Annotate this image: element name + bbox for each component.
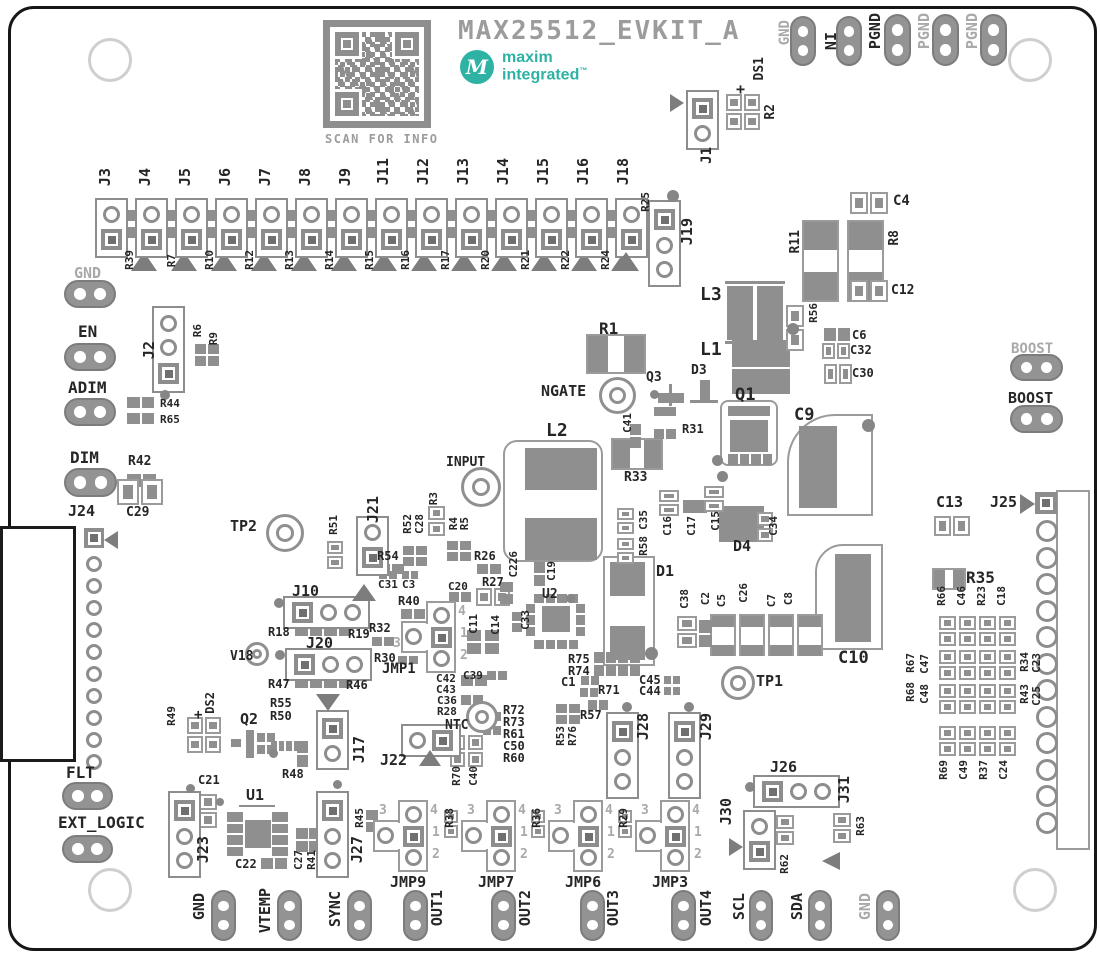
label-r3: R3 [428,492,439,505]
connector-j6 [215,198,248,258]
via-dot [186,784,195,793]
round-pin [86,644,102,660]
maxim-logo-icon: M [460,50,494,84]
grid-component [979,726,996,756]
label-out3: OUT3 [606,890,621,926]
pin1-marker-triangle [316,694,340,711]
label-dim: DIM [70,450,99,466]
smd-component [677,616,697,648]
round-pin [86,688,102,704]
pcb-pad [770,645,792,656]
label-j6: J6 [218,168,233,186]
smd-component [704,486,724,512]
round-pin [86,666,102,682]
grid-component [939,616,956,646]
label-c8: C8 [783,592,794,605]
board-title: MAX25512_EVKIT_A [458,16,740,46]
label-r25: R25 [640,192,651,212]
label-jmp7: JMP7 [478,875,514,890]
label-j25: J25 [990,495,1017,510]
label-en: EN [78,324,97,340]
smd-component [199,794,217,828]
label-c49: C49 [958,760,969,780]
label-r76: R76 [567,726,578,746]
label-j12: J12 [416,158,431,185]
pin1-marker-triangle [822,852,840,870]
label-r65: R65 [160,414,180,425]
pin-number-2: 2 [520,848,528,861]
via-dot [275,650,285,660]
connector-j13 [455,198,488,258]
label-ds2: DS2 [204,692,216,714]
label-jmp9: JMP9 [390,875,426,890]
label-ds1: DS1 [753,57,766,80]
pin1-marker-triangle [104,531,118,549]
smd-component [477,564,501,574]
pad-en [64,343,116,371]
label-r37: R37 [978,760,989,780]
via-dot [667,190,679,202]
pin-number-2: 2 [607,848,615,861]
pcb-pad [757,286,783,340]
label-r26: R26 [474,550,496,562]
label-c32: C32 [850,344,872,356]
label-r34: R34 [1019,652,1030,672]
smd-component [428,506,445,536]
smd-component [403,546,414,566]
label-sync: SYNC [328,891,343,927]
smd-component [372,637,394,646]
label-r69: R69 [938,760,949,780]
pcb-pad [712,616,734,627]
label-j4: J4 [138,168,153,186]
label-c40: C40 [468,766,479,786]
label-j10: J10 [292,584,319,599]
grid-component [959,650,976,680]
label-pgnd: PGND [965,13,980,49]
label-j21: J21 [366,496,381,523]
round-pin [465,827,482,844]
qr-finder-tr [395,32,419,56]
label-r43: R43 [1019,684,1030,704]
label-j31: J31 [837,776,852,803]
square-pin [665,826,686,847]
smd-component [117,479,163,505]
smd-component [850,192,888,214]
smd-component [297,741,308,767]
label-r2: R2 [764,104,777,120]
pin-number-3: 3 [641,804,649,817]
label-c44: C44 [639,685,661,697]
label-r1: R1 [599,321,618,337]
connector-j30 [743,810,776,870]
pcb-pad [525,448,597,490]
connector-j26 [753,775,840,808]
label-r23: R23 [976,586,987,606]
via-dot [787,323,799,335]
label-c25: C25 [1031,686,1042,706]
label-c30: C30 [852,367,874,379]
label-r57: R57 [580,709,602,721]
grid-component [979,684,996,714]
label-c47: C47 [919,654,930,674]
label-j11: J11 [376,158,391,185]
label-boost: BOOST [1008,391,1053,406]
label-c7: C7 [766,594,777,607]
jumper-join [573,823,577,849]
via-dot [684,702,694,712]
label-c3: C3 [402,579,415,590]
grid-component [959,726,976,756]
label-c18: C18 [996,586,1007,606]
label-r10: R10 [204,250,215,270]
mounting-hole [88,868,132,912]
pcb-pad [799,645,821,656]
label-c33: C33 [520,610,531,630]
label-r52: R52 [402,514,413,534]
pcb-pad [690,400,718,403]
pin-number-4: 4 [605,804,613,817]
round-pin [433,650,450,667]
via-dot [333,780,342,789]
label-r71: R71 [598,684,620,696]
pcb-pad [799,616,821,627]
label-c11: C11 [468,614,479,634]
smd-component [594,652,640,663]
via-dot [216,798,224,806]
pin1-marker-triangle [613,252,639,271]
pcb-pad [732,340,790,367]
label-r47: R47 [268,678,290,690]
pad-ext-logic [62,835,113,863]
smd-component [468,735,483,767]
mounting-hole [1008,38,1052,82]
label-r55: R55 [270,697,292,709]
pad-out4 [671,890,696,941]
connector-j3 [95,198,128,258]
mounting-hole [1013,868,1057,912]
pad-gnd-left [64,280,116,308]
label-c34: C34 [768,516,779,536]
connector-j20 [285,648,372,681]
connector-j4 [135,198,168,258]
pcb-pad [654,407,676,416]
smd-component [776,815,794,845]
label-j19: J19 [680,218,695,245]
label-c38: C38 [679,589,690,609]
label-r42: R42 [128,455,151,468]
label-ext-logic: EXT_LOGIC [58,815,145,831]
label-v18: V18 [230,650,253,663]
label-r7: R7 [166,254,177,267]
label-r53: R53 [555,726,566,746]
label-j18: J18 [616,158,631,185]
round-pin [86,556,102,572]
pad-boost-1 [1010,354,1063,381]
smd-component [659,490,679,516]
smd-component [534,562,545,586]
pcb-pad [246,730,254,758]
smd-component [327,541,343,569]
smd-component [833,813,851,843]
label-r16: R16 [400,250,411,270]
label-r56: R56 [808,303,819,323]
label-j16: J16 [576,158,591,185]
label-c6: C6 [852,329,866,341]
label-c21: C21 [198,774,220,786]
label--: + [736,82,745,97]
label-r24: R24 [600,250,611,270]
grid-component [939,684,956,714]
label-j22: J22 [380,753,407,768]
label-r15: R15 [364,250,375,270]
label-r58: R58 [638,536,649,556]
label-j5: J5 [178,168,193,186]
round-pin [1036,520,1058,542]
label-c17: C17 [686,516,697,536]
label-r54: R54 [377,550,399,562]
label-r5: R5 [459,517,470,530]
label-j30: J30 [719,798,734,825]
pcb-pad [741,616,763,627]
smd-component [664,676,680,684]
pin1-marker-triangle [729,838,743,856]
label-l2: L2 [546,422,568,440]
label-r11: R11 [789,230,802,253]
pin-number-3: 3 [467,804,475,817]
round-pin [405,628,422,645]
label-c41: C41 [622,413,633,433]
ngate-testpoint [599,377,636,414]
label-u2: U2 [542,588,558,601]
label-j3: J3 [98,168,113,186]
label-r9: R9 [208,332,219,345]
label-r50: R50 [270,710,292,722]
via-dot [274,598,284,608]
pcb-pad [610,562,645,596]
grid-component [939,650,956,680]
pcb-pad [727,286,753,340]
pad-boost-2 [1010,405,1063,433]
pin-number-2: 2 [694,848,702,861]
square-pin [491,826,512,847]
label-r20: R20 [480,250,491,270]
qr-code [323,20,431,128]
label-jmp3: JMP3 [652,875,688,890]
smd-component [208,344,219,366]
connector-j12 [415,198,448,258]
label-j29: J29 [699,713,714,740]
label-c12: C12 [891,284,914,297]
smd-component [664,687,680,695]
label-r17: R17 [440,250,451,270]
grid-component [999,684,1016,714]
label-sda: SDA [790,893,805,920]
label-c19: C19 [546,561,557,581]
label-out2: OUT2 [518,890,533,926]
smd-component [617,538,634,564]
pin-number-1: 1 [520,826,528,839]
label-j13: J13 [456,158,471,185]
smd-component [822,343,850,359]
connector-j21 [356,516,389,576]
pin1-marker-triangle [1020,494,1035,514]
label-j24: J24 [68,504,95,519]
pad-scl [749,890,773,941]
label-r40: R40 [398,595,420,607]
grid-component [979,650,996,680]
pad-adim [64,398,116,426]
pcb-pad [700,380,710,400]
label-c28: C28 [414,514,425,534]
label-gnd: GND [192,893,207,920]
label-pgnd: PGND [868,13,883,49]
pin-number-4: 4 [458,605,466,618]
label-r29: R29 [618,808,629,828]
label-gnd: GND [74,266,101,281]
label-c20: C20 [448,581,468,592]
label-j1: J1 [700,147,714,164]
round-pin [1036,547,1058,569]
round-pin [86,578,102,594]
label-j8: J8 [298,168,313,186]
pcb-pad [799,426,837,508]
label-r62: R62 [779,854,790,874]
maxim-logo-text: maxim integrated™ [502,50,587,84]
square-pin [431,627,452,648]
pin1-marker-triangle [419,750,441,766]
grid-component [959,684,976,714]
smd-component [556,704,567,724]
pcb-board: SCAN FOR INFO MAX25512_EVKIT_A M maxim i… [0,0,1100,956]
via-dot [269,749,278,758]
label-r13: R13 [284,250,295,270]
label-tp2: TP2 [230,519,257,534]
pcb-pad [741,645,763,656]
pin-number-4: 4 [692,804,700,817]
label-r44: R44 [160,398,180,409]
smd-component [195,344,206,366]
round-pin [86,710,102,726]
label-c22: C22 [235,858,257,870]
label-r27: R27 [482,576,504,588]
pad-pgnd-3 [980,14,1007,66]
ntc-testpoint [466,701,498,733]
label-l1: L1 [700,341,722,359]
label-c4: C4 [893,194,910,208]
label-boost: BOOST [1011,342,1053,356]
round-pin [667,849,684,866]
pad-gnd-bottom [211,890,236,941]
round-pin [86,622,102,638]
component-outline [1056,490,1090,850]
pin-number-3: 3 [393,637,401,650]
logo-tm: ™ [579,66,587,75]
round-pin [580,849,597,866]
grid-component [999,616,1016,646]
pad-pgnd-2 [932,14,959,66]
label-c23: C23 [1031,653,1042,673]
square-pin [84,528,104,548]
pad-out3 [580,890,605,941]
label-r8: R8 [888,230,901,246]
pin-number-2: 2 [432,848,440,861]
pcb-pad [231,739,241,747]
round-pin [405,806,422,823]
via-dot [717,471,728,482]
smd-component [227,812,243,856]
via-dot [712,455,723,466]
smd-component [580,688,598,697]
smd-component [594,665,640,676]
label-r31: R31 [682,423,704,435]
label-r38: R38 [444,808,455,828]
label-r68: R68 [905,682,916,702]
label-c10: C10 [838,650,869,667]
label-r51: R51 [328,515,339,535]
pad-sda [808,890,832,941]
label-pgnd: PGND [917,13,932,49]
pcb-pad [669,384,672,406]
label-c29: C29 [126,506,149,519]
label-vtemp: VTEMP [258,888,273,933]
via-dot [645,647,658,660]
smd-component [205,717,221,753]
smd-component [934,516,970,536]
label-c46: C46 [956,586,967,606]
smd-component [272,812,288,856]
label-tp1: TP1 [756,674,783,689]
pin-number-3: 3 [554,804,562,817]
label-ntc: NTC [445,719,468,732]
pcb-pad [245,820,271,848]
smd-component [824,328,850,341]
round-pin [1036,812,1058,834]
label-r49: R49 [166,706,177,726]
label-r14: R14 [324,250,335,270]
pcb-pad [770,616,792,627]
label-r36: R36 [531,808,542,828]
round-pin [377,827,394,844]
label-c9: C9 [794,407,814,424]
smd-component [726,94,742,130]
label-flt: FLT [66,765,95,781]
label-q1: Q1 [735,387,755,404]
smd-component [699,620,712,647]
label-c5: C5 [716,594,727,607]
input-testpoint [461,467,501,507]
label-scl: SCL [732,893,747,920]
grid-component [999,726,1016,756]
pin-number-3: 3 [379,804,387,817]
via-dot [650,390,659,399]
logo-word2-line: integrated™ [502,67,587,84]
smd-component [654,429,676,439]
smd-component [850,280,888,302]
label-r21: R21 [520,250,531,270]
logo-word1: maxim [502,50,587,67]
pad-pgnd-1 [884,14,911,66]
label-u1: U1 [246,788,264,803]
smd-component [487,671,507,680]
label-j23: J23 [196,836,211,863]
label-c48: C48 [919,684,930,704]
smd-component [127,413,154,424]
label-out1: OUT1 [430,890,445,926]
smd-component [824,364,852,384]
label-r45: R45 [354,808,365,828]
pad-gnd-top [790,16,816,66]
